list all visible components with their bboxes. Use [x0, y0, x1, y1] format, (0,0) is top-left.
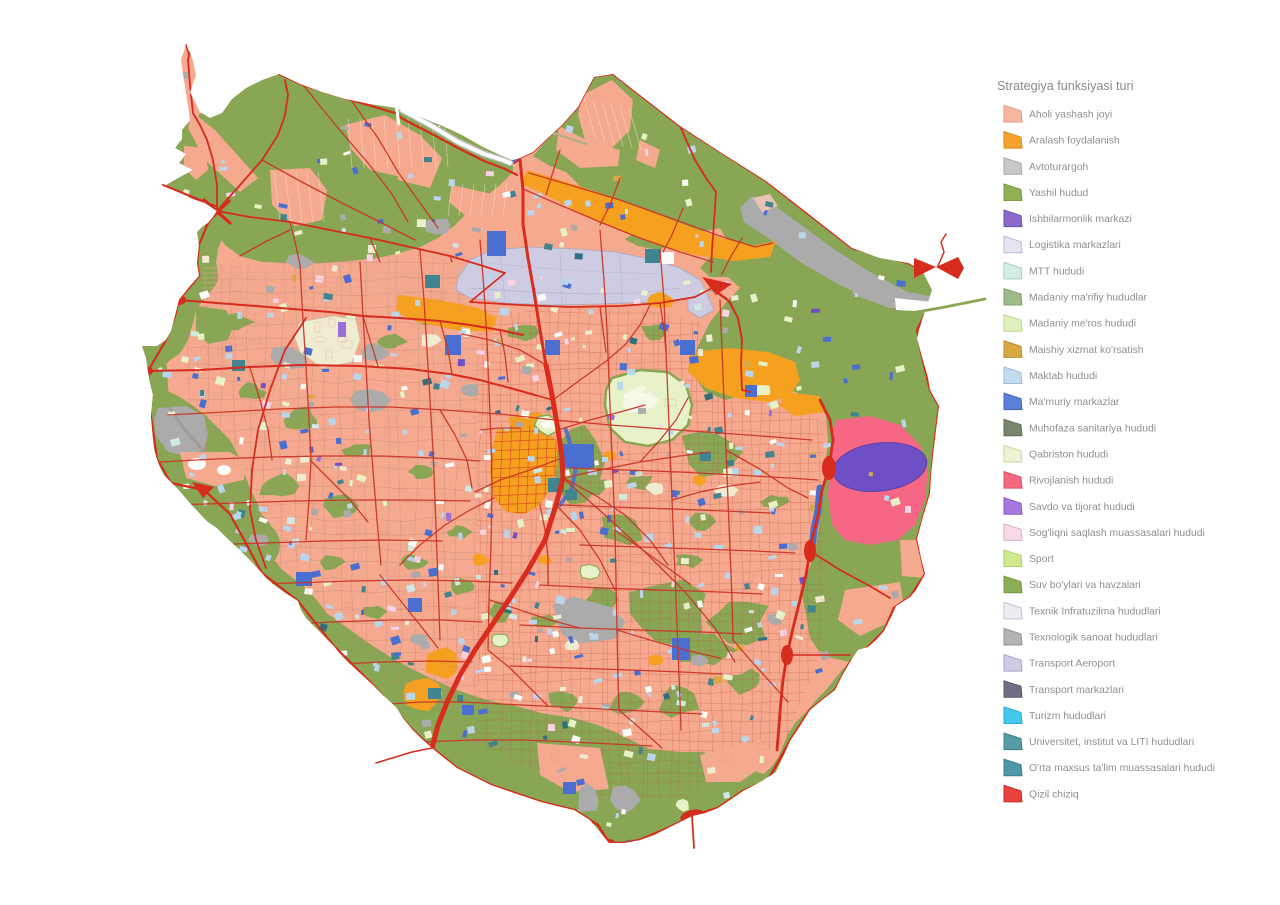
svg-text:Madaniy me'ros hududi: Madaniy me'ros hududi: [1029, 319, 1136, 330]
svg-text:Ishbilarmonlik markazi: Ishbilarmonlik markazi: [1029, 214, 1132, 225]
svg-text:Texnik Infratuzilma hududlari: Texnik Infratuzilma hududlari: [1029, 606, 1161, 617]
svg-text:Qabriston hududi: Qabriston hududi: [1029, 449, 1108, 460]
svg-text:Sog'liqni saqlash muassasalari: Sog'liqni saqlash muassasalari hududi: [1029, 528, 1205, 539]
svg-text:Maktab hududi: Maktab hududi: [1029, 371, 1097, 382]
svg-text:Transport Aeroport: Transport Aeroport: [1029, 659, 1115, 670]
svg-text:Logistika markazlari: Logistika markazlari: [1029, 240, 1121, 251]
svg-text:Yashil hudud: Yashil hudud: [1029, 188, 1089, 199]
svg-text:Aralash foydalanish: Aralash foydalanish: [1029, 136, 1120, 147]
svg-text:O'rta maxsus ta'lim muassasala: O'rta maxsus ta'lim muassasalari hududi: [1029, 763, 1215, 774]
svg-text:Sport: Sport: [1029, 554, 1054, 565]
svg-text:Savdo va tijorat hududi: Savdo va tijorat hududi: [1029, 502, 1135, 513]
svg-text:Ma'muriy markazlar: Ma'muriy markazlar: [1029, 397, 1120, 408]
svg-text:Turizm hududlari: Turizm hududlari: [1029, 711, 1106, 722]
svg-text:Texnologik sanoat hududlari: Texnologik sanoat hududlari: [1029, 633, 1158, 644]
svg-text:Universitet, institut va LITI: Universitet, institut va LITI hududlari: [1029, 737, 1194, 748]
svg-text:Qizil chiziq: Qizil chiziq: [1029, 789, 1079, 800]
svg-text:Madaniy ma'rifiy hududlar: Madaniy ma'rifiy hududlar: [1029, 293, 1148, 304]
svg-text:Avtoturargoh: Avtoturargoh: [1029, 162, 1089, 173]
svg-text:MTT hududi: MTT hududi: [1029, 266, 1084, 277]
svg-text:Rivojlanish hududi: Rivojlanish hududi: [1029, 476, 1113, 487]
svg-text:Suv bo'ylari va havzalari: Suv bo'ylari va havzalari: [1029, 580, 1141, 591]
svg-text:Aholi yashash joyi: Aholi yashash joyi: [1029, 110, 1112, 121]
svg-text:Muhofaza sanitariya hududi: Muhofaza sanitariya hududi: [1029, 423, 1156, 434]
svg-text:Maishiy xizmat ko'rsatish: Maishiy xizmat ko'rsatish: [1029, 345, 1144, 356]
svg-text:Transport markazlari: Transport markazlari: [1029, 685, 1124, 696]
svg-text:Strategiya funksiyasi turi: Strategiya funksiyasi turi: [997, 79, 1134, 93]
